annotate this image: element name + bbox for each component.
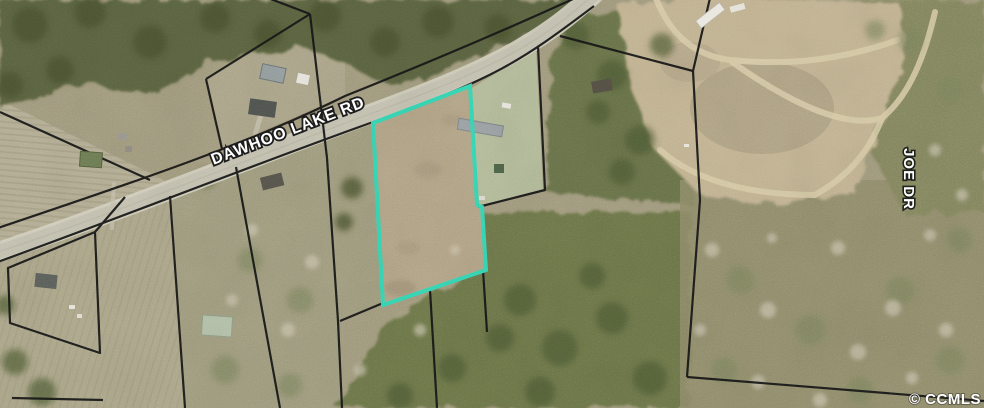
- watermark: © CCMLS: [909, 391, 981, 408]
- aerial-map-image: DAWHOO LAKE RD JOE DR © CCMLS: [0, 0, 984, 408]
- photo-patchiness: [0, 0, 984, 408]
- mls-aerial-photo: DAWHOO LAKE RD JOE DR © CCMLS: [0, 0, 984, 408]
- side-road-label: JOE DR: [900, 148, 917, 210]
